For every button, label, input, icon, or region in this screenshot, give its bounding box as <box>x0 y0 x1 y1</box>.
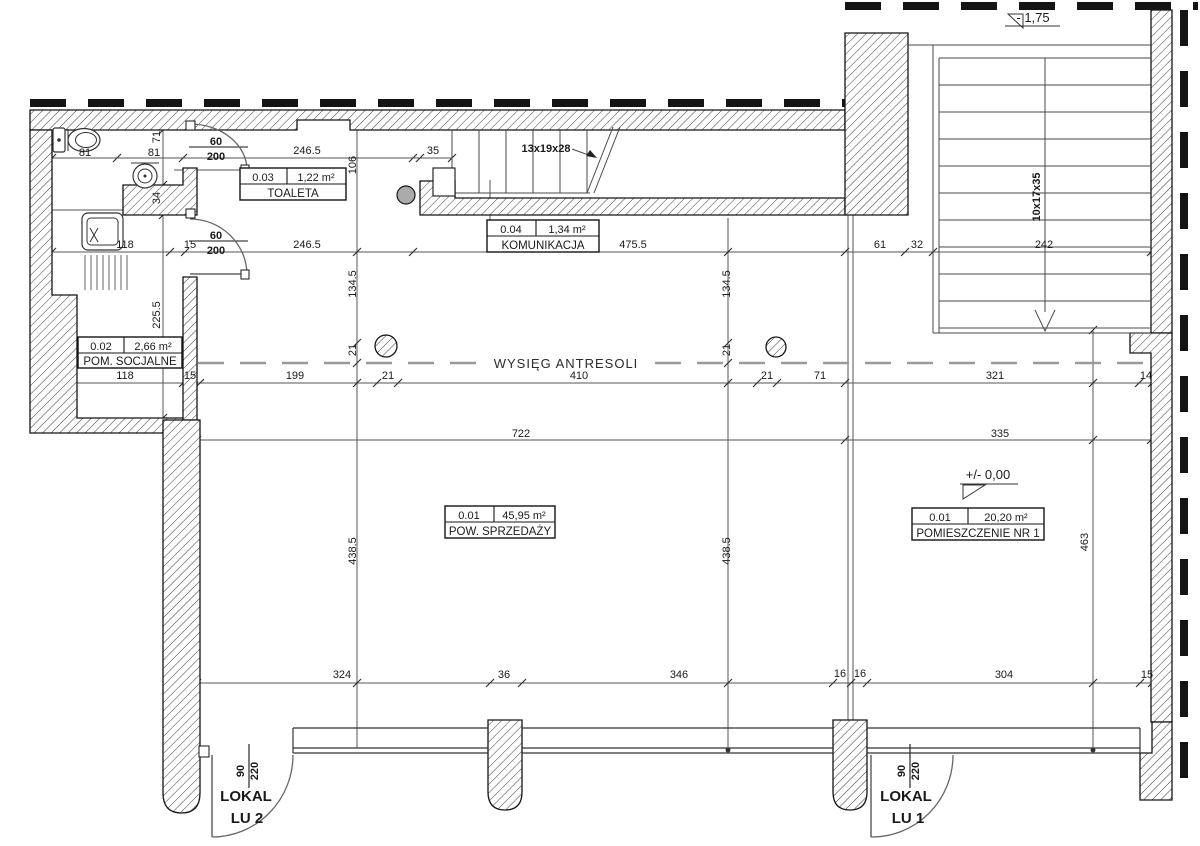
dimension-label: 304 <box>995 669 1013 681</box>
room-label-socjalne: 0.02 2,66 m² POM. SOCJALNE <box>78 337 182 368</box>
dimension-label: 225.5 <box>151 301 163 329</box>
level-marker-upper: - 1,75 <box>1005 10 1060 28</box>
room-name: POMIESZCZENIE NR 1 <box>916 528 1039 540</box>
stairs-top: 13x19x28 <box>433 127 620 196</box>
room-area: 45,95 m² <box>502 510 546 522</box>
dimension-label: 15 <box>184 370 196 382</box>
lokal-lu2-label: LOKAL LU 2 <box>220 788 272 827</box>
dimension-label: 475.5 <box>619 239 647 251</box>
walls <box>30 10 1172 813</box>
dimension-label: 106 <box>347 156 359 174</box>
room-name: KOMUNIKACJA <box>501 240 584 252</box>
dimension-label: 134.5 <box>347 270 359 298</box>
dimension-label: 34 <box>151 192 163 204</box>
dimension-label: 21 <box>347 344 359 356</box>
toilet-fixture <box>53 128 100 152</box>
dimension-label: 32 <box>911 239 923 251</box>
room-label-komunikacja: 0.04 1,34 m² KOMUNIKACJA <box>487 220 599 252</box>
level-ground-value: +/- 0,00 <box>966 467 1010 482</box>
wall-right-exterior-upper <box>1151 10 1172 333</box>
room-label-toaleta: 0.03 1,22 m² TOALETA <box>240 168 346 200</box>
room-area: 1,22 m² <box>297 172 335 184</box>
dimension-label: 35 <box>427 145 439 157</box>
facade-pier-2 <box>833 720 867 810</box>
storefront <box>293 728 1140 753</box>
stair-top-label: 13x19x28 <box>522 143 571 155</box>
column-round-stair <box>397 186 415 204</box>
dimension-label: 246.5 <box>293 239 321 251</box>
dimension-label: 15 <box>184 239 196 251</box>
dimension-label: 71 <box>151 131 163 143</box>
room-number: 0.02 <box>90 341 111 353</box>
dimension-label: 722 <box>512 428 530 440</box>
room-area: 1,34 m² <box>548 224 586 236</box>
stairs-right: 10x17x35 <box>908 45 1151 333</box>
svg-text:LU 2: LU 2 <box>231 810 264 827</box>
wall-left-exterior <box>30 130 183 433</box>
dimension-label: 14 <box>1140 370 1152 382</box>
room-name: POW. SPRZEDAŻY <box>449 525 552 538</box>
dimension-label: 134.5 <box>721 270 733 298</box>
room-number: 0.01 <box>929 512 950 524</box>
room-labels: 0.03 1,22 m² TOALETA 0.04 1,34 m² KOMUNI… <box>78 168 1044 540</box>
wall-lu2-party <box>163 420 200 813</box>
dimension-label: 200 <box>207 151 225 163</box>
wall-stairwell-pier <box>845 33 908 215</box>
dimension-label: 438.5 <box>721 537 733 565</box>
dimension-label: 81 <box>148 147 160 159</box>
dimension-label: 324 <box>333 669 351 681</box>
svg-text:LOKAL: LOKAL <box>220 788 272 805</box>
washbasin-fixture <box>131 163 159 188</box>
lu2-doorframe-notch <box>199 746 209 757</box>
wall-top-band <box>30 110 845 130</box>
room-name: TOALETA <box>267 188 319 200</box>
column-hatched-2 <box>766 337 786 357</box>
floor-plan-page: WYSIĘG ANTRESOLI 13x19x28 <box>0 0 1200 846</box>
wall-right-exterior-mid <box>1130 333 1172 722</box>
wall-right-exterior-pier <box>1140 722 1172 800</box>
antresola-label: WYSIĘG ANTRESOLI <box>494 356 639 371</box>
dimension-label: 16 <box>834 668 846 680</box>
stair-arrow-head <box>586 150 597 158</box>
dimension-label: 410 <box>570 370 588 382</box>
dimension-label: 118 <box>116 370 134 382</box>
antresola-line: WYSIĘG ANTRESOLI <box>198 356 1151 371</box>
dimension-label: 21 <box>761 370 773 382</box>
dimension-label: 61 <box>874 239 886 251</box>
dimension-label: 21 <box>382 370 394 382</box>
dimension-label: 438.5 <box>347 537 359 565</box>
floor-plan-svg: WYSIĘG ANTRESOLI 13x19x28 <box>0 0 1200 846</box>
dimension-label: 60 <box>210 230 222 242</box>
column-hatched-1 <box>375 335 397 357</box>
room-number: 0.01 <box>458 510 479 522</box>
dimension-label: 335 <box>991 428 1009 440</box>
dimension-label: 60 <box>210 136 222 148</box>
dimension-label: 220 <box>910 762 922 780</box>
dimension-label: 81 <box>79 147 91 159</box>
dimension-label: 463 <box>1079 533 1091 551</box>
wall-understair <box>420 181 845 215</box>
dimension-label: 321 <box>986 370 1004 382</box>
stair-right-label: 10x17x35 <box>1031 173 1043 222</box>
level-upper-value: - 1,75 <box>1016 10 1049 25</box>
dimension-label: 220 <box>249 762 261 780</box>
entrance-labels: LOKAL LU 2 LOKAL LU 1 <box>220 788 932 827</box>
room-number: 0.03 <box>252 172 273 184</box>
lokal-lu1-label: LOKAL LU 1 <box>880 788 932 827</box>
room-area: 2,66 m² <box>134 341 172 353</box>
facade-pier-1 <box>488 720 522 810</box>
room-number: 0.04 <box>500 224 521 236</box>
level-marker-ground: +/- 0,00 <box>960 467 1018 499</box>
level-triangle-icon <box>963 485 985 499</box>
dimension-label: 90 <box>896 765 908 777</box>
dimension-label: 15 <box>1141 669 1153 681</box>
dimension-label: 16 <box>854 668 866 680</box>
room-label-sprzedaz: 0.01 45,95 m² POW. SPRZEDAŻY <box>445 506 555 538</box>
svg-text:LU 1: LU 1 <box>892 810 925 827</box>
dimension-label: 346 <box>670 669 688 681</box>
svg-text:LOKAL: LOKAL <box>880 788 932 805</box>
dimension-label: 71 <box>814 370 826 382</box>
dimension-label: 200 <box>207 245 225 257</box>
dimension-label: 199 <box>286 370 304 382</box>
drainboard-stripes <box>85 255 127 290</box>
room-label-pomieszczenie1: 0.01 20,20 m² POMIESZCZENIE NR 1 <box>912 508 1044 540</box>
dimension-label: 36 <box>498 669 510 681</box>
dimension-label: 118 <box>116 239 134 251</box>
wall-corridor-partition <box>183 277 197 420</box>
dimension-label: 242 <box>1035 239 1053 251</box>
stair-landing-block <box>433 168 455 196</box>
dimension-label: 21 <box>721 344 733 356</box>
dimension-label: 90 <box>235 765 247 777</box>
room-name: POM. SOCJALNE <box>83 356 177 368</box>
room-area: 20,20 m² <box>984 512 1028 524</box>
dimension-label: 246.5 <box>293 145 321 157</box>
